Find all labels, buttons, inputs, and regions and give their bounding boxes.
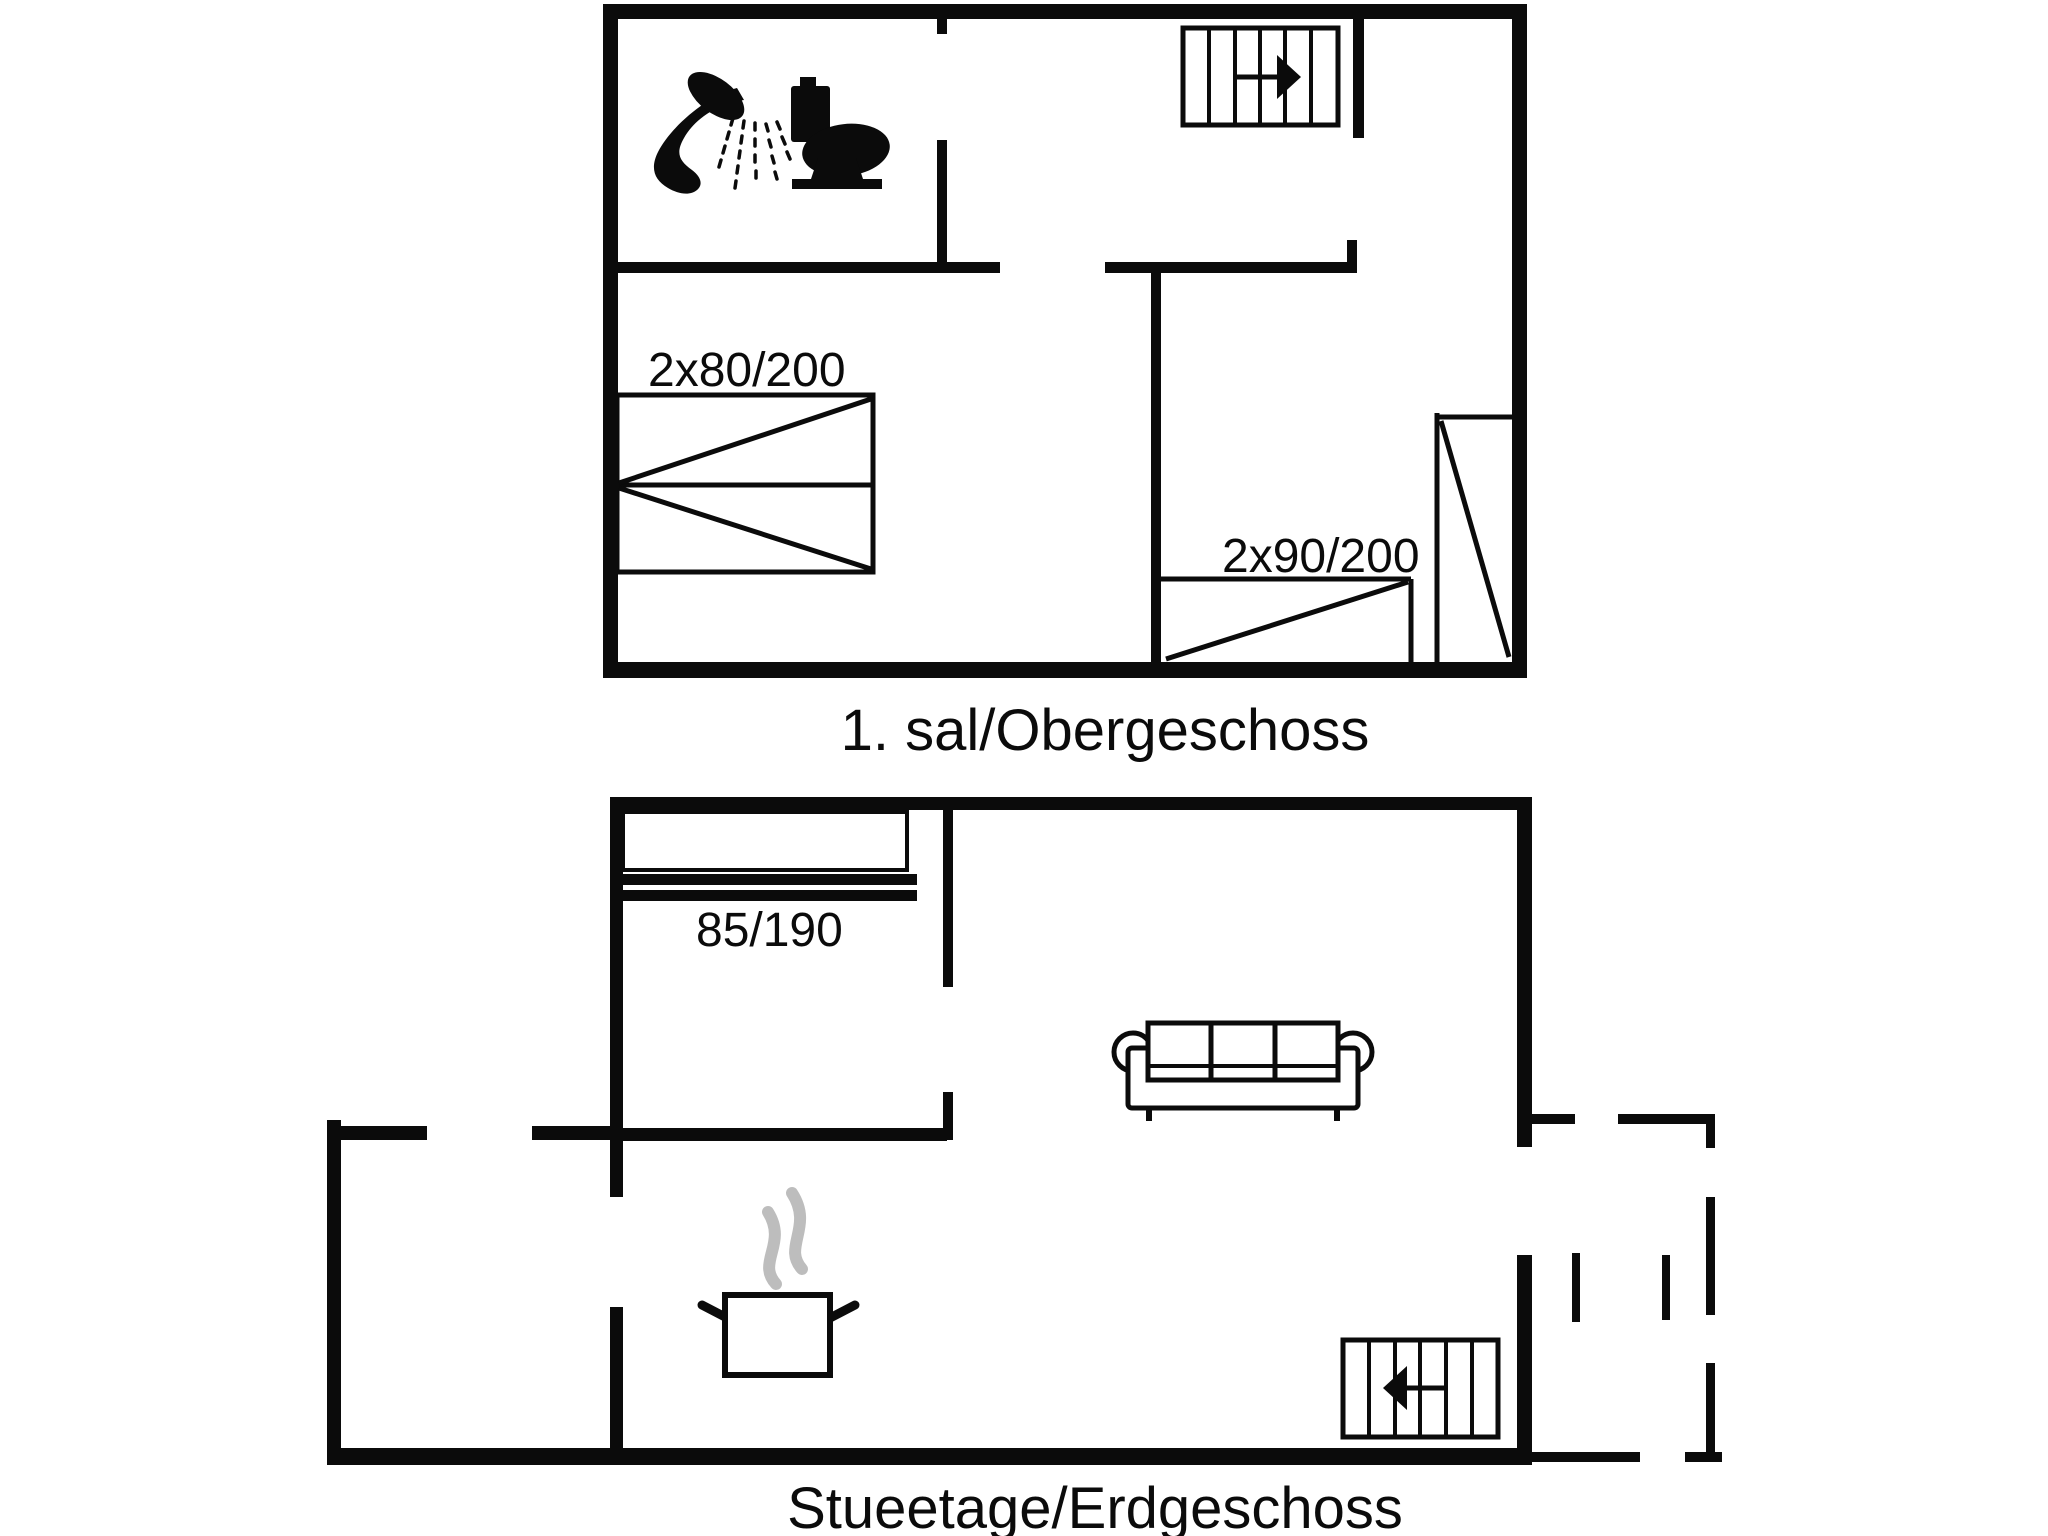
floor-plan-drawing: 2x80/200 2x90/200 1. sal/Obergeschoss (0, 0, 2048, 1536)
ground-floor-plan: 85/190 (327, 797, 1722, 1536)
spray-dash (735, 181, 736, 188)
spray-dash (743, 121, 744, 128)
floor-plan-page: 2x80/200 2x90/200 1. sal/Obergeschoss (0, 0, 2048, 1536)
spray-dash (782, 137, 785, 144)
wall-segment (1151, 273, 1161, 662)
toilet-base (792, 179, 882, 189)
wall-segment (943, 810, 953, 987)
stairs-down-icon (1343, 1340, 1498, 1437)
terrace-dash (1706, 1363, 1715, 1460)
wall-segment (617, 262, 1000, 273)
wall-segment (943, 1092, 953, 1140)
spray-dash (719, 160, 721, 167)
terrace-dash (1685, 1452, 1722, 1462)
shower-spray (719, 118, 790, 188)
cooking-pot-icon (702, 1193, 855, 1375)
bed-double-symbol (617, 395, 873, 572)
wall-segment (610, 1307, 623, 1455)
wall-segment (603, 662, 1527, 678)
wall-segment (603, 4, 1527, 19)
terrace-dash (1618, 1114, 1712, 1124)
bed-single-label: 85/190 (696, 904, 843, 957)
terrace-dash (1532, 1452, 1640, 1462)
bed-twin-label: 2x90/200 (1222, 530, 1420, 583)
wall-segment (618, 1128, 947, 1141)
bed-single-symbol (623, 812, 917, 901)
wall-segment (1347, 240, 1357, 262)
terrace-dash (1532, 1114, 1575, 1124)
bed-double-label: 2x80/200 (648, 344, 846, 397)
spray-dash (769, 140, 771, 147)
terrace-dash (1706, 1114, 1715, 1148)
terrace-outline (1532, 1114, 1722, 1462)
spray-dash (723, 146, 725, 153)
toilet-pedestal (810, 158, 864, 182)
shower-icon (654, 63, 790, 194)
spray-dash (772, 156, 774, 163)
stairs-up-icon (1183, 28, 1338, 125)
spray-dash (787, 152, 790, 159)
wall-segment (937, 19, 947, 34)
spray-dash (777, 122, 780, 129)
toilet-icon (791, 77, 893, 189)
wall-segment (1353, 19, 1364, 138)
spray-dash (775, 172, 777, 179)
bed-diagonal (619, 399, 871, 483)
upper-floor-plan: 2x80/200 2x90/200 1. sal/Obergeschoss (603, 4, 1527, 763)
wall-segment (1105, 262, 1357, 273)
terrace-dash (1706, 1197, 1715, 1315)
terrace-dash (1662, 1255, 1670, 1320)
wall-segment (532, 1126, 618, 1140)
pot-handle (830, 1305, 855, 1318)
bed-diagonal (1441, 421, 1509, 657)
terrace-dash (1572, 1253, 1580, 1322)
spray-dash (741, 136, 742, 143)
spray-dash (739, 151, 740, 158)
wall-segment (327, 1448, 1532, 1465)
wall-segment (327, 1120, 341, 1465)
sofa-icon (1114, 1023, 1372, 1121)
spray-dash (737, 166, 738, 173)
pot-body (725, 1295, 830, 1375)
stairs-arrow-head (1277, 55, 1301, 99)
ground-floor-walls (327, 797, 1532, 1465)
wall-segment (1517, 1255, 1532, 1465)
wall-segment (1517, 797, 1532, 1147)
bed-diagonal (1166, 582, 1408, 659)
ground-floor-caption: Stueetage/Erdgeschoss (787, 1476, 1403, 1536)
steam-wisp (792, 1193, 802, 1269)
bed-rail (623, 874, 917, 885)
upper-floor-caption: 1. sal/Obergeschoss (841, 698, 1370, 763)
wall-segment (603, 4, 618, 678)
wall-segment (1512, 4, 1527, 678)
sofa-cushions (1148, 1023, 1338, 1080)
spray-dash (731, 118, 733, 125)
bed-rail (623, 890, 917, 901)
spray-dash (766, 124, 768, 131)
wall-segment (327, 1126, 427, 1140)
wall-segment (937, 140, 947, 272)
bed-diagonal (619, 488, 871, 569)
steam-wisp (768, 1212, 776, 1284)
wall-segment (617, 797, 1532, 810)
bed-outline (623, 812, 907, 870)
spray-dash (727, 132, 729, 139)
